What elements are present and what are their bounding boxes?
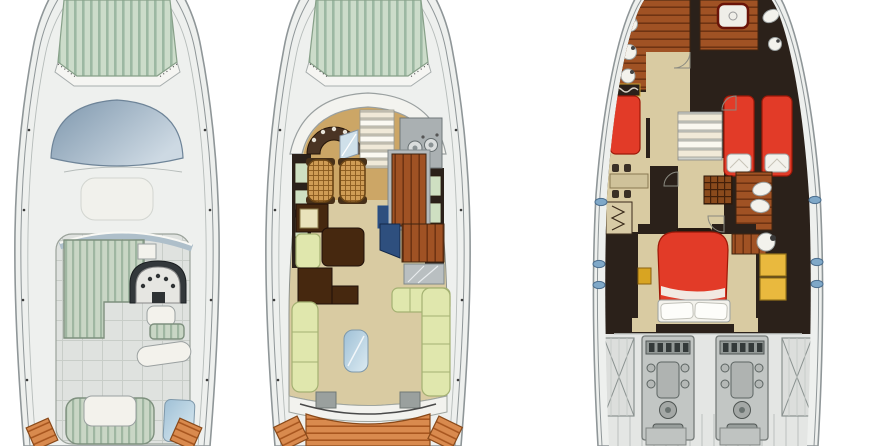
dinette-bench bbox=[296, 234, 320, 268]
pillow bbox=[727, 154, 751, 172]
nightstand bbox=[734, 318, 758, 332]
settee bbox=[606, 202, 632, 234]
corridor bbox=[650, 112, 678, 166]
yacht-deck-plans bbox=[0, 0, 890, 446]
hatch-square bbox=[138, 244, 156, 259]
pillow bbox=[661, 302, 694, 320]
stairs bbox=[678, 112, 722, 160]
helm-wheel-pod bbox=[152, 292, 165, 303]
pillow bbox=[765, 154, 789, 172]
starboard-bathroom bbox=[736, 172, 773, 230]
engine-starboard bbox=[716, 336, 768, 440]
bow-sunpad bbox=[55, 0, 180, 86]
shower-stall bbox=[718, 4, 748, 28]
cabinet bbox=[760, 254, 786, 276]
gearbox-port bbox=[646, 428, 686, 445]
pillow bbox=[695, 302, 728, 320]
cabinet bbox=[760, 278, 786, 300]
dinette-table bbox=[322, 228, 364, 266]
galley-wood-floor bbox=[402, 224, 444, 262]
lower-deck-plan bbox=[584, 0, 832, 446]
gold-locker bbox=[638, 268, 651, 284]
bow-landing bbox=[646, 52, 690, 118]
cockpit-table bbox=[84, 396, 136, 426]
port-bench bbox=[292, 302, 318, 392]
nightstand bbox=[632, 318, 656, 332]
cabinet bbox=[296, 204, 328, 232]
engine-port bbox=[642, 336, 694, 440]
galley-unit bbox=[298, 268, 332, 304]
bow-sunpad bbox=[306, 0, 431, 86]
gearbox-starboard bbox=[720, 428, 760, 445]
flybridge-deck-plan bbox=[2, 0, 224, 446]
salon bbox=[274, 93, 463, 446]
shower-grate bbox=[704, 176, 732, 204]
coffee-table bbox=[344, 330, 368, 372]
fuel-tank-starboard bbox=[782, 338, 812, 416]
galley-unit bbox=[332, 286, 358, 304]
main-deck-plan bbox=[252, 0, 484, 446]
cooktop bbox=[404, 264, 444, 284]
fuel-tank-port bbox=[604, 338, 634, 416]
side-bench bbox=[150, 324, 184, 339]
helm-console bbox=[130, 261, 186, 303]
table bbox=[610, 174, 648, 188]
galley-door bbox=[388, 150, 430, 230]
sink bbox=[769, 38, 782, 51]
helm-seat bbox=[147, 306, 175, 326]
master-bed bbox=[658, 228, 730, 322]
dinette bbox=[296, 228, 364, 304]
